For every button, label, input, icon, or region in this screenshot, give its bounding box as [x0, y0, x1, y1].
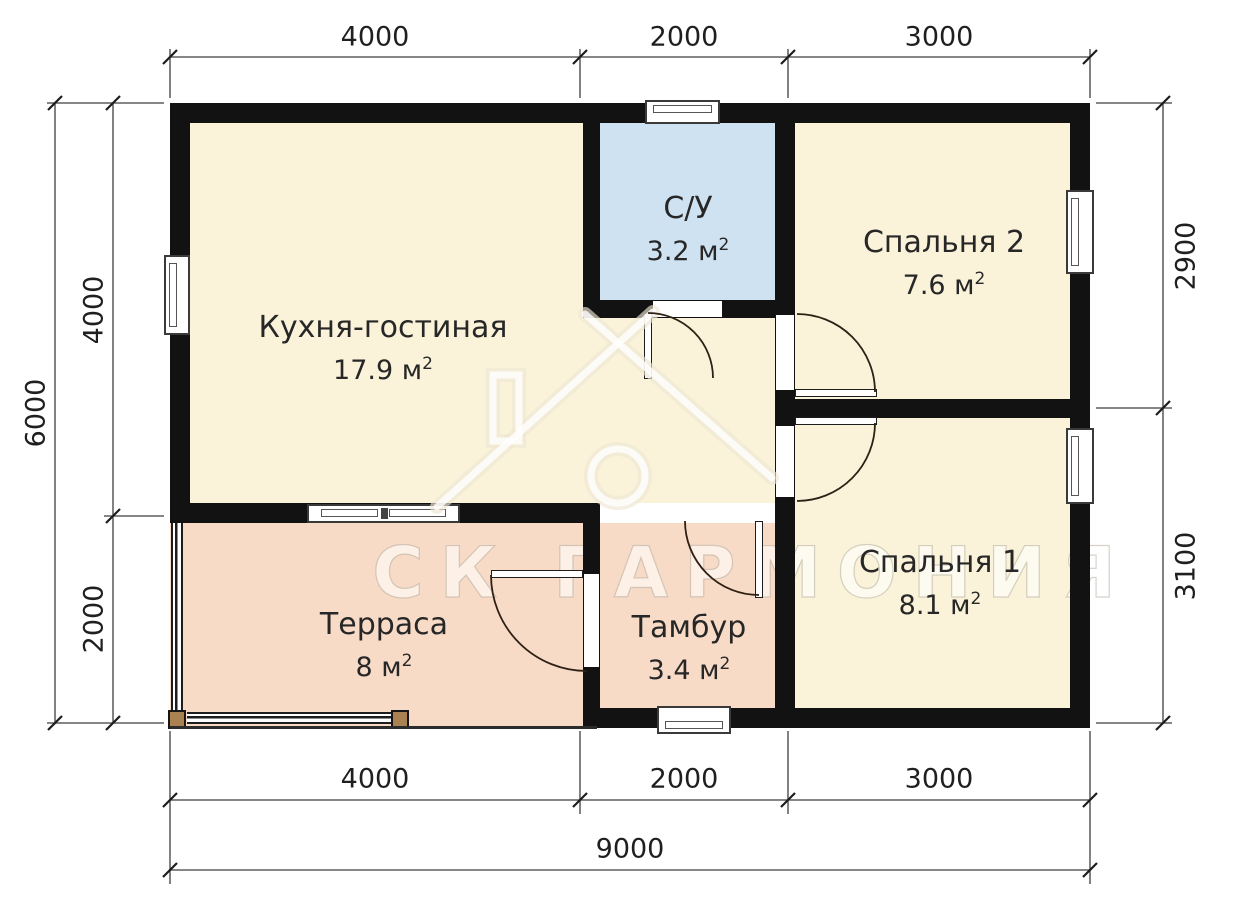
dim-bottom-3000: 3000 — [905, 764, 974, 795]
floor-plan: СК ГАРМОНИЯ — [0, 0, 1253, 923]
room-label-terrace: Терраса 8 м2 — [320, 606, 448, 686]
door-arc-bedroom2 — [797, 314, 875, 392]
dim-top-3000: 3000 — [905, 22, 974, 53]
room-label-bedroom2: Спальня 2 7.6 м2 — [863, 224, 1025, 304]
door-arc-vestibule — [685, 521, 759, 595]
dim-left-6000: 6000 — [21, 379, 52, 448]
room-label-vestibule: Тамбур 3.4 м2 — [632, 609, 747, 689]
door-arc-terrace — [491, 575, 587, 671]
dim-left-4000: 4000 — [79, 276, 110, 345]
dim-top-2000: 2000 — [650, 22, 719, 53]
dim-left-2000: 2000 — [79, 585, 110, 654]
dimension-lines — [47, 49, 1172, 884]
room-label-bathroom: С/У 3.2 м2 — [647, 190, 730, 270]
room-label-bedroom1: Спальня 1 8.1 м2 — [859, 544, 1021, 624]
dim-bottom-4000: 4000 — [341, 764, 410, 795]
dim-bottom-2000: 2000 — [650, 764, 719, 795]
door-arc-bedroom1 — [797, 423, 875, 501]
dimension-ticks — [48, 50, 1170, 877]
door-arc-bathroom — [648, 313, 713, 378]
dim-bottom-9000: 9000 — [596, 834, 665, 865]
dim-right-3100: 3100 — [1171, 532, 1202, 601]
dim-top-4000: 4000 — [341, 22, 410, 53]
plan-annotations — [0, 0, 1253, 923]
room-label-kitchen-living: Кухня-гостиная 17.9 м2 — [259, 309, 508, 389]
dim-right-2900: 2900 — [1171, 222, 1202, 291]
